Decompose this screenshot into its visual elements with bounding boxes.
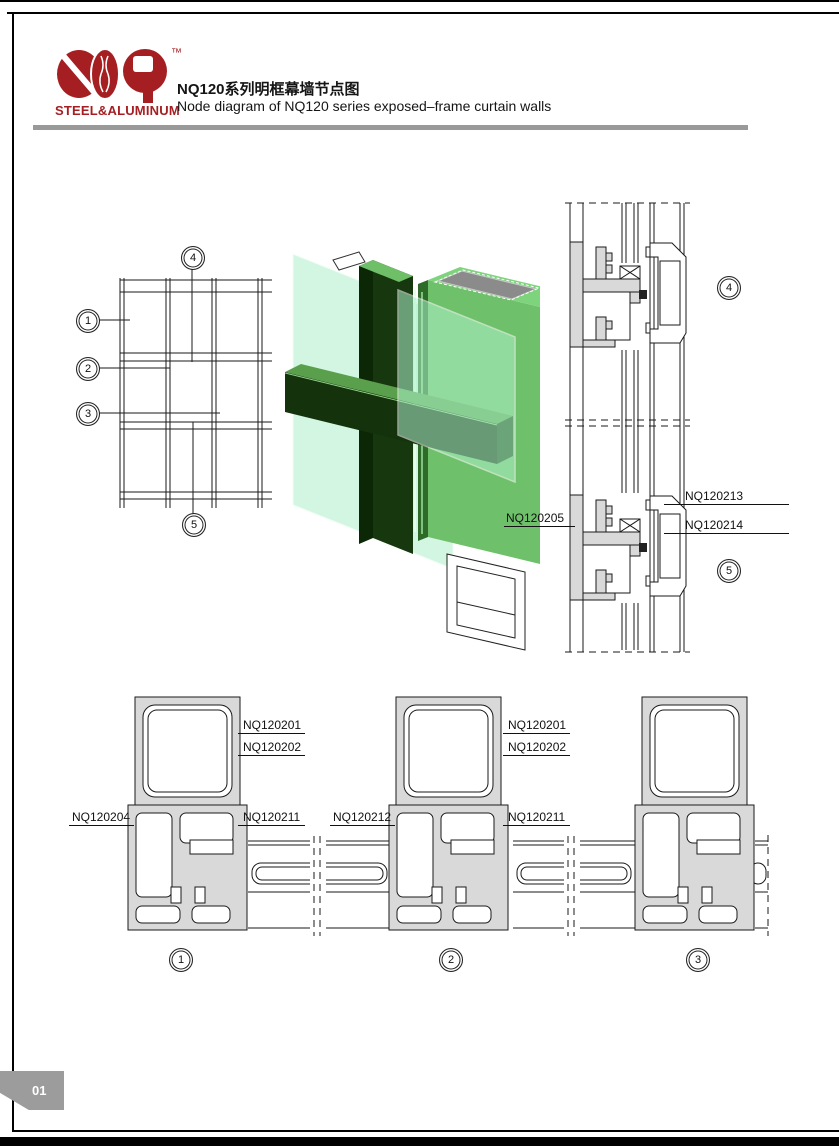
label-d1-nq120204: NQ120204 bbox=[69, 811, 134, 826]
label-d1-nq120201: NQ120201 bbox=[238, 719, 305, 734]
sheet-top-edge bbox=[0, 0, 839, 2]
plan-callout-2: 2 bbox=[76, 357, 100, 381]
brand-name: STEEL&ALUMINUM bbox=[55, 103, 183, 118]
plan-view bbox=[75, 245, 275, 545]
logo-leaf bbox=[91, 49, 119, 99]
drawing-sheet: ™ STEEL&ALUMINUM NQ120系列明框幕墙节点图 Node dia… bbox=[0, 0, 839, 1146]
vertical-section-drawing bbox=[560, 195, 695, 660]
border-bottom bbox=[12, 1130, 839, 1132]
label-d2-nq120211: NQ120211 bbox=[503, 811, 570, 826]
detail-callout-1: 1 bbox=[169, 948, 193, 972]
vsec-callout-4: 4 bbox=[717, 276, 741, 300]
detail-node-3 bbox=[635, 697, 754, 930]
label-nq120213: NQ120213 bbox=[664, 490, 789, 505]
label-d2-nq120212: NQ120212 bbox=[330, 811, 395, 826]
logo-trademark: ™ bbox=[171, 47, 182, 59]
detail-node-1 bbox=[128, 697, 247, 930]
border-top bbox=[7, 12, 839, 14]
detail-callout-2: 2 bbox=[439, 948, 463, 972]
plan-leaders bbox=[98, 267, 220, 514]
bottom-cut-profile bbox=[447, 554, 525, 650]
label-d2-nq120201: NQ120201 bbox=[503, 719, 570, 734]
plan-callout-1: 1 bbox=[76, 309, 100, 333]
isometric-illustration bbox=[285, 232, 540, 662]
plan-callout-5: 5 bbox=[182, 513, 206, 537]
vsec-node-bottom bbox=[570, 495, 686, 600]
sheet-bottom-band bbox=[0, 1137, 839, 1146]
label-d2-nq120202: NQ120202 bbox=[503, 741, 570, 756]
plan-mullions bbox=[120, 278, 262, 508]
title-en: Node diagram of NQ120 series exposed–fra… bbox=[177, 98, 551, 114]
plan-callout-3: 3 bbox=[76, 402, 100, 426]
logo: ™ bbox=[55, 44, 185, 106]
label-nq120205: NQ120205 bbox=[504, 512, 575, 527]
detail-callout-3: 3 bbox=[686, 948, 710, 972]
horizontal-details-drawing bbox=[60, 692, 839, 952]
page-number-tab: 01 bbox=[0, 1071, 64, 1110]
label-nq120214: NQ120214 bbox=[664, 519, 789, 534]
vsec-callout-5: 5 bbox=[717, 559, 741, 583]
vsec-node-top bbox=[570, 242, 686, 347]
label-d1-nq120202: NQ120202 bbox=[238, 741, 305, 756]
detail-node-2 bbox=[389, 697, 508, 930]
header-divider bbox=[33, 125, 748, 130]
border-left bbox=[12, 12, 14, 1132]
label-d1-nq120211: NQ120211 bbox=[238, 811, 305, 826]
plan-transoms bbox=[120, 280, 272, 499]
title-cn: NQ120系列明框幕墙节点图 bbox=[177, 78, 360, 99]
plan-callout-4: 4 bbox=[181, 246, 205, 270]
